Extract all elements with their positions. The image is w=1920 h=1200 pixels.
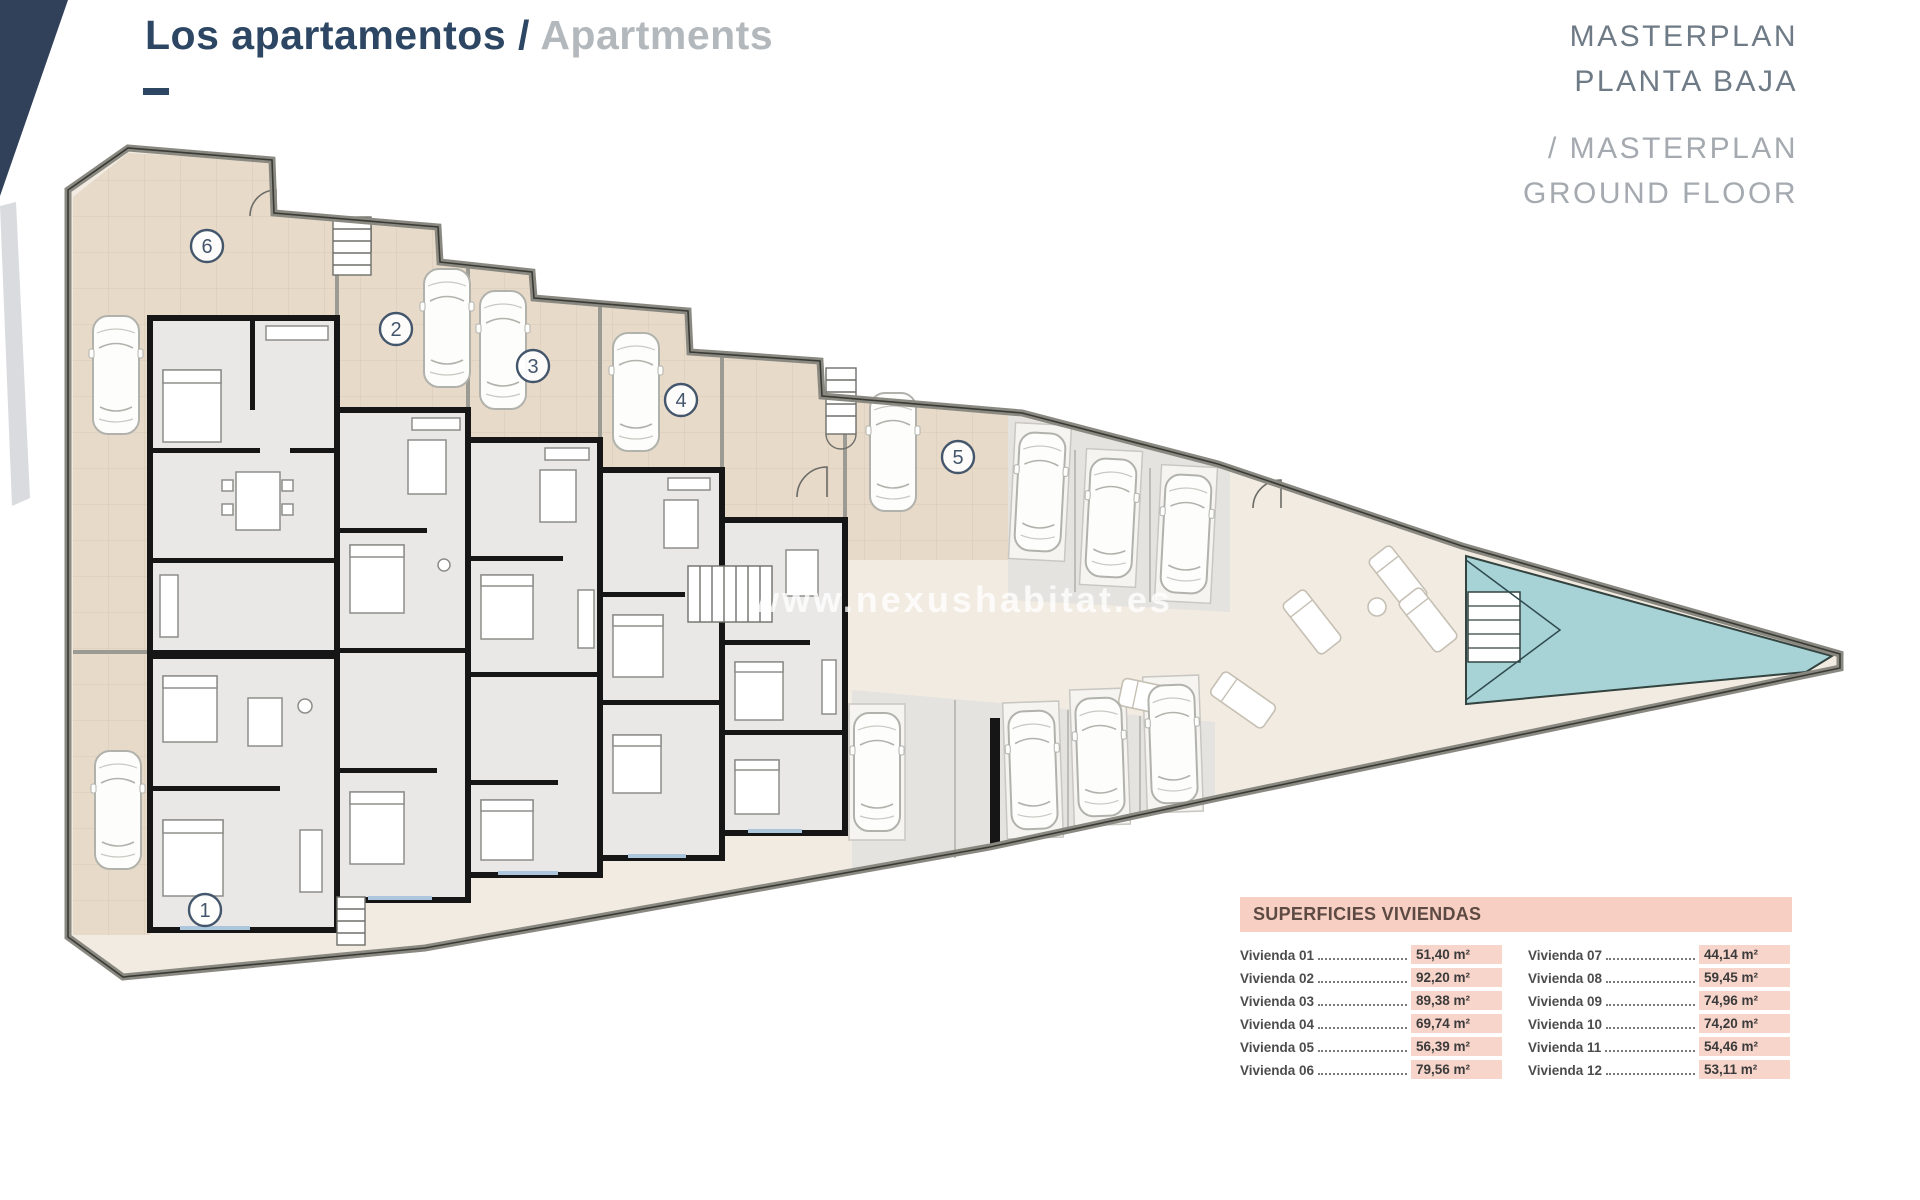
vivienda-area-value: 89,38 m² xyxy=(1411,991,1502,1010)
parking-wall xyxy=(990,718,1000,848)
table-row: Vivienda 0744,14 m² xyxy=(1528,941,1790,964)
unit-number-label: 1 xyxy=(199,900,210,922)
vivienda-label: Vivienda 04 xyxy=(1240,1017,1314,1033)
vivienda-area-value: 59,45 m² xyxy=(1699,968,1790,987)
car-icon xyxy=(420,269,474,387)
car-icon xyxy=(1081,458,1141,579)
vivienda-label: Vivienda 11 xyxy=(1528,1040,1601,1056)
car-icon xyxy=(1156,474,1216,595)
car-icon xyxy=(476,291,530,409)
car-icon xyxy=(1004,710,1062,830)
vivienda-area-value: 74,20 m² xyxy=(1699,1014,1790,1033)
unit-number-label: 4 xyxy=(675,390,686,412)
vivienda-label: Vivienda 06 xyxy=(1240,1063,1314,1079)
vivienda-area-value: 51,40 m² xyxy=(1411,945,1502,964)
table-row: Vivienda 1074,20 m² xyxy=(1528,1010,1790,1033)
unit-number-label: 6 xyxy=(201,236,212,258)
deck-table xyxy=(1368,598,1386,616)
masterplan-line-3: / MASTERPLAN xyxy=(1523,126,1798,171)
dotted-leader xyxy=(1318,1004,1407,1006)
areas-table-column-left: Vivienda 0151,40 m²Vivienda 0292,20 m²Vi… xyxy=(1240,941,1502,1079)
table-row: Vivienda 0556,39 m² xyxy=(1240,1033,1502,1056)
unit-block-2 xyxy=(337,410,468,900)
car-icon xyxy=(1010,432,1070,553)
dotted-leader xyxy=(1606,1073,1695,1075)
table-row: Vivienda 1253,11 m² xyxy=(1528,1056,1790,1079)
masterplan-line-4: GROUND FLOOR xyxy=(1523,171,1798,216)
areas-table-title: SUPERFICIES VIVIENDAS xyxy=(1240,897,1792,932)
car-icon xyxy=(1071,697,1129,817)
areas-table: SUPERFICIES VIVIENDAS Vivienda 0151,40 m… xyxy=(1240,897,1792,1079)
car-icon xyxy=(850,713,904,831)
vivienda-label: Vivienda 03 xyxy=(1240,994,1314,1010)
car-icon xyxy=(866,393,920,511)
table-row: Vivienda 0679,56 m² xyxy=(1240,1056,1502,1079)
vivienda-area-value: 56,39 m² xyxy=(1411,1037,1502,1056)
unit-block-4 xyxy=(600,470,722,858)
areas-table-column-right: Vivienda 0744,14 m²Vivienda 0859,45 m²Vi… xyxy=(1528,941,1790,1079)
title-dash xyxy=(143,88,169,95)
dotted-leader xyxy=(1318,981,1407,983)
pool-stairs xyxy=(1468,592,1520,662)
vivienda-label: Vivienda 09 xyxy=(1528,994,1602,1010)
vivienda-area-value: 53,11 m² xyxy=(1699,1060,1790,1079)
unit-number-label: 5 xyxy=(952,447,963,469)
table-row: Vivienda 0292,20 m² xyxy=(1240,964,1502,987)
vivienda-label: Vivienda 02 xyxy=(1240,971,1314,987)
vivienda-label: Vivienda 01 xyxy=(1240,948,1314,964)
vivienda-label: Vivienda 12 xyxy=(1528,1063,1602,1079)
page-title-secondary: Apartments xyxy=(540,12,773,58)
dotted-leader xyxy=(1318,1050,1407,1052)
stairs-icon xyxy=(337,897,365,945)
table-row: Vivienda 0389,38 m² xyxy=(1240,987,1502,1010)
vivienda-label: Vivienda 07 xyxy=(1528,948,1602,964)
table-row: Vivienda 0859,45 m² xyxy=(1528,964,1790,987)
vivienda-label: Vivienda 08 xyxy=(1528,971,1602,987)
car-icon xyxy=(609,333,663,451)
table-row: Vivienda 0469,74 m² xyxy=(1240,1010,1502,1033)
unit-number-label: 2 xyxy=(390,319,401,341)
vivienda-area-value: 69,74 m² xyxy=(1411,1014,1502,1033)
masterplan-heading: MASTERPLAN PLANTA BAJA / MASTERPLAN GROU… xyxy=(1523,14,1798,216)
page-title-primary: Los apartamentos / xyxy=(145,12,530,58)
table-row: Vivienda 1154,46 m² xyxy=(1528,1033,1790,1056)
dotted-leader xyxy=(1318,958,1407,960)
vivienda-label: Vivienda 05 xyxy=(1240,1040,1314,1056)
dotted-leader xyxy=(1605,1050,1695,1052)
dotted-leader xyxy=(1606,958,1695,960)
dotted-leader xyxy=(1606,1004,1695,1006)
masterplan-line-1: MASTERPLAN xyxy=(1523,14,1798,59)
dotted-leader xyxy=(1606,981,1695,983)
vivienda-label: Vivienda 10 xyxy=(1528,1017,1602,1033)
car-icon xyxy=(1144,684,1202,804)
vivienda-area-value: 79,56 m² xyxy=(1411,1060,1502,1079)
stairs-icon xyxy=(333,217,371,275)
vivienda-area-value: 74,96 m² xyxy=(1699,991,1790,1010)
masterplan-line-2: PLANTA BAJA xyxy=(1523,59,1798,104)
dotted-leader xyxy=(1318,1027,1407,1029)
vivienda-area-value: 92,20 m² xyxy=(1411,968,1502,987)
vivienda-area-value: 54,46 m² xyxy=(1699,1037,1790,1056)
unit-block-3 xyxy=(468,440,600,875)
page-title: Los apartamentos / Apartments xyxy=(145,12,773,59)
unit-number-label: 3 xyxy=(527,356,538,378)
unit-block-6-1 xyxy=(150,318,337,930)
car-icon xyxy=(91,751,145,869)
table-row: Vivienda 0151,40 m² xyxy=(1240,941,1502,964)
watermark-text: www.nexushabitat.es xyxy=(750,579,1173,620)
dotted-leader xyxy=(1606,1027,1695,1029)
car-icon xyxy=(89,316,143,434)
dotted-leader xyxy=(1318,1073,1407,1075)
table-row: Vivienda 0974,96 m² xyxy=(1528,987,1790,1010)
vivienda-area-value: 44,14 m² xyxy=(1699,945,1790,964)
masterplan-page: 123456 www.nexushabitat.es Los apartamen… xyxy=(0,0,1920,1200)
corner-ribbon xyxy=(0,0,68,506)
